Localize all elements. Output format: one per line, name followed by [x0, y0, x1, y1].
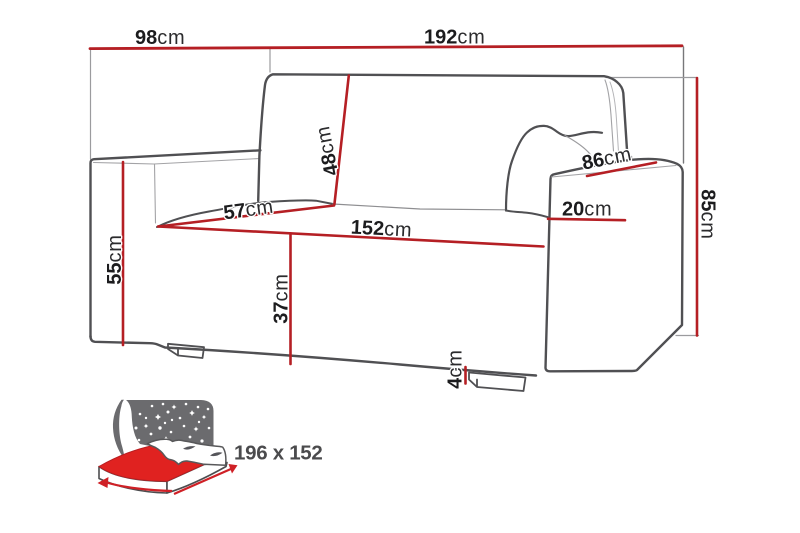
- svg-text:85cm: 85cm: [697, 189, 719, 240]
- svg-text:196 x 152: 196 x 152: [234, 442, 323, 465]
- svg-text:20cm: 20cm: [562, 199, 613, 221]
- svg-text:98cm: 98cm: [135, 27, 186, 49]
- svg-text:192cm: 192cm: [424, 27, 486, 49]
- svg-text:152cm: 152cm: [350, 217, 413, 242]
- svg-text:37cm: 37cm: [271, 273, 293, 324]
- svg-text:4cm: 4cm: [445, 349, 467, 388]
- svg-text:55cm: 55cm: [104, 234, 126, 285]
